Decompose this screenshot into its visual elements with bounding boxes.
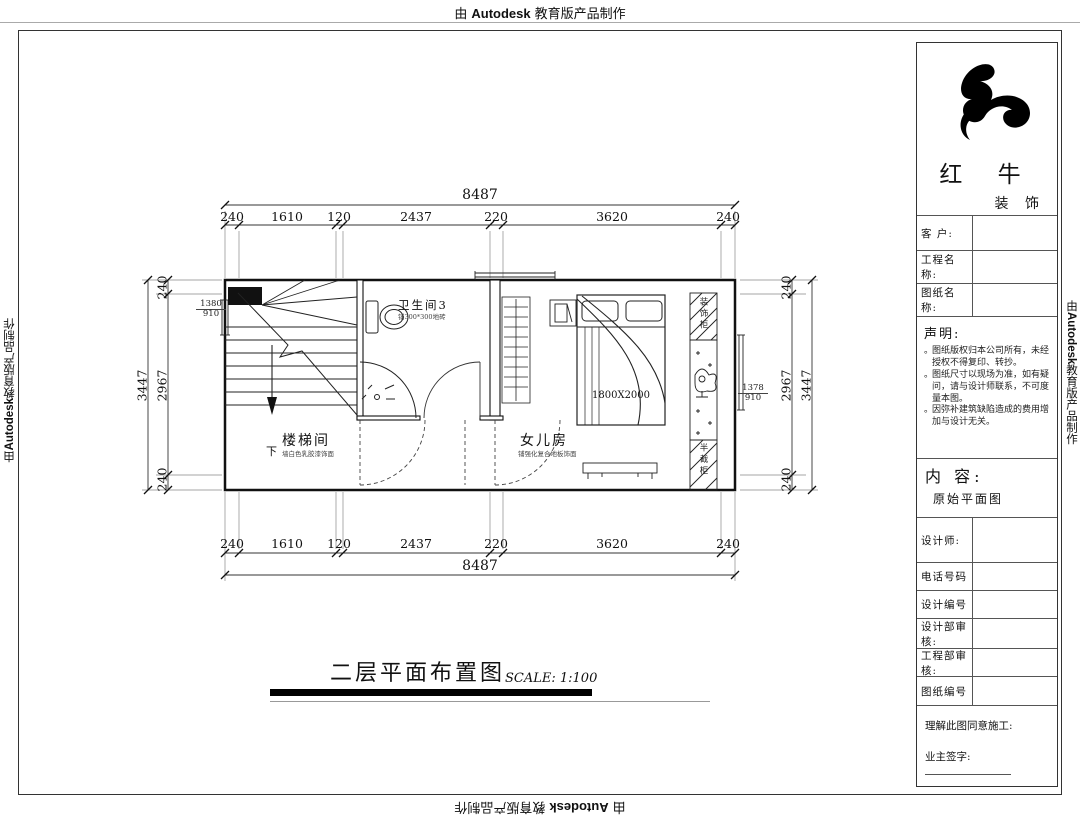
dim-left-mid: 2967 — [155, 361, 170, 411]
bull-logo-icon — [932, 57, 1042, 149]
field-row-project: 工程名称: — [917, 251, 1057, 284]
dim-bot-seg-3: 2437 — [381, 536, 451, 551]
bath-door — [424, 362, 480, 418]
dim-bot-seg-6: 240 — [693, 536, 763, 551]
row-phone: 电话号码 — [917, 563, 1057, 591]
content-label: 内 容: — [925, 463, 1049, 487]
stair-down-label: 下 — [266, 443, 277, 459]
stairs — [225, 280, 357, 415]
dim-right-240-bot: 240 — [779, 460, 794, 500]
dim-window-left: 1380 910 — [196, 300, 226, 320]
row-label-eng-audit: 工程部审核: — [917, 649, 973, 676]
content-value: 原始平面图 — [925, 490, 1049, 507]
field-row-drawing: 图纸名称: — [917, 284, 1057, 317]
row-design-no: 设计编号 — [917, 591, 1057, 619]
row-label-designer: 设计师: — [917, 518, 973, 562]
watermark-by: 由 — [454, 6, 467, 21]
plan-title: 二层平面布置图 — [330, 655, 505, 687]
dim-top-seg-5: 3620 — [577, 209, 647, 224]
room-bath-note: 铺300*300地砖 — [398, 311, 446, 321]
field-row-client: 客 户: — [917, 216, 1057, 251]
watermark-bottom: 由Autodesk教育版产品制作 — [0, 799, 1080, 818]
dim-right-total: 3447 — [799, 361, 814, 411]
row-value-designer — [973, 518, 1057, 562]
field-label-drawing: 图纸名称: — [917, 284, 973, 316]
watermark-brand: Autodesk — [471, 6, 530, 21]
row-value-design-no — [973, 591, 1057, 618]
statement-item: 。 图纸版权归本公司所有，未经授权不得复印、转抄。 — [924, 346, 1050, 370]
room-stair-label: 楼梯间 — [282, 430, 330, 450]
statement-heading: 声明: — [924, 323, 1050, 342]
cabinet-top-label: 装饰柜 — [697, 297, 709, 332]
row-label-design-audit: 设计部审核: — [917, 619, 973, 648]
field-value-drawing — [973, 284, 1057, 316]
statement-item: 。 因弥补建筑缺陷造成的费用增加与设计无关。 — [924, 405, 1050, 429]
dim-top-total: 8487 — [225, 187, 735, 203]
statement-item: 。 图纸尺寸以现场为准，如有疑问，请与设计师联系，不可度量本图。 — [924, 370, 1050, 406]
footer-signature: 业主签字: — [925, 749, 1049, 778]
dim-bot-seg-4: 220 — [461, 536, 531, 551]
top-divider-line — [0, 22, 1080, 23]
row-value-eng-audit — [973, 649, 1057, 676]
field-value-project — [973, 251, 1057, 283]
watermark-right: 由Autodesk教育版产品制作 — [1063, 300, 1079, 444]
footer-agree: 理解此图同意施工: — [925, 718, 1049, 733]
title-block: 红 牛 装 饰 客 户: 工程名称: 图纸名称: 声明: 。 图纸版权归本公司所… — [916, 42, 1058, 787]
flue-block — [228, 287, 262, 305]
plant — [695, 369, 716, 397]
shelf-rack — [502, 297, 530, 403]
content-box: 内 容: 原始平面图 — [917, 459, 1057, 518]
row-sheet-no: 图纸编号 — [917, 677, 1057, 706]
dim-top-seg-3: 2437 — [381, 209, 451, 224]
dim-left-240-top: 240 — [155, 268, 170, 308]
field-label-client: 客 户: — [917, 216, 973, 250]
row-value-phone — [973, 563, 1057, 590]
field-value-client — [973, 216, 1057, 250]
row-label-design-no: 设计编号 — [917, 591, 973, 618]
room-stair-note: 墙白色乳胶漆饰面 — [282, 448, 334, 458]
room-bedroom-label: 女儿房 — [520, 430, 568, 450]
bed — [577, 295, 665, 425]
title-underline-thin — [270, 701, 710, 702]
watermark-left: 由Autodesk教育版产品制作 — [2, 318, 18, 462]
dim-bot-total: 8487 — [225, 558, 735, 574]
dim-right-mid: 2967 — [779, 361, 794, 411]
row-designer: 设计师: — [917, 518, 1057, 563]
bed-size-label: 1800X2000 — [592, 390, 650, 401]
statement-box: 声明: 。 图纸版权归本公司所有，未经授权不得复印、转抄。 。 图纸尺寸以现场为… — [917, 317, 1057, 459]
title-underline-thick — [270, 689, 592, 696]
dim-window-right: 1378 910 — [738, 384, 768, 404]
room-bedroom-note: 铺强化复合地板饰面 — [518, 448, 577, 458]
wall-cabinet — [550, 300, 576, 326]
company-sub: 装 饰 — [917, 193, 1057, 213]
row-value-sheet-no — [973, 677, 1057, 705]
watermark-top: 由Autodesk教育版产品制作 — [0, 3, 1080, 22]
dim-right-240-top: 240 — [779, 268, 794, 308]
logo-cell: 红 牛 装 饰 — [917, 43, 1057, 216]
dim-bot-seg-2: 120 — [304, 536, 374, 551]
dim-top-seg-4: 220 — [461, 209, 531, 224]
plan-scale: SCALE: 1:100 — [505, 671, 597, 686]
dim-left-total: 3447 — [135, 361, 150, 411]
window-symbols — [220, 271, 745, 410]
bench — [583, 463, 657, 479]
row-value-design-audit — [973, 619, 1057, 648]
row-label-sheet-no: 图纸编号 — [917, 677, 973, 705]
field-label-project: 工程名称: — [917, 251, 973, 283]
dim-bot-seg-5: 3620 — [577, 536, 647, 551]
dim-top-seg-2: 120 — [304, 209, 374, 224]
company-name: 红 牛 — [917, 155, 1057, 189]
signature-line — [925, 764, 1011, 775]
dim-top-seg-6: 240 — [693, 209, 763, 224]
dim-left-240-bot: 240 — [155, 460, 170, 500]
cabinet-bottom-label: 半截柜 — [697, 443, 709, 478]
footer-box: 理解此图同意施工: 业主签字: — [917, 706, 1057, 788]
row-eng-audit: 工程部审核: — [917, 649, 1057, 677]
shower — [360, 362, 416, 418]
watermark-suffix: 教育版产品制作 — [535, 6, 626, 21]
row-label-phone: 电话号码 — [917, 563, 973, 590]
row-design-audit: 设计部审核: — [917, 619, 1057, 649]
